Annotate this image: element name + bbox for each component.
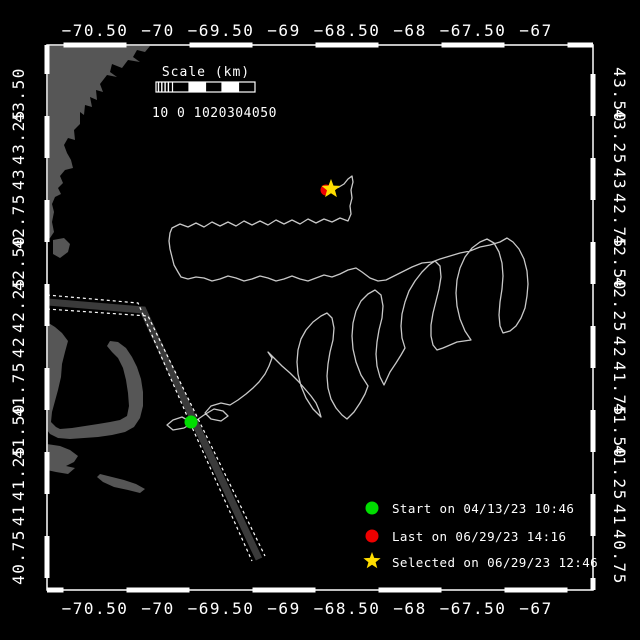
glider-track-layer[interactable]	[167, 176, 528, 430]
glider-track[interactable]	[167, 176, 528, 430]
lat-tick-label-right: 40.75	[610, 529, 629, 585]
legend-selected-label: Selected on 06/29/23 12:46	[392, 555, 598, 570]
landmass	[47, 322, 143, 439]
scale-bar-fill	[222, 82, 239, 92]
legend-last-dot-icon	[366, 530, 379, 543]
lon-tick-label-bottom: −70.50	[62, 599, 129, 618]
lon-tick-label-bottom: −69.50	[188, 599, 255, 618]
lon-tick-label-bottom: −70	[141, 599, 174, 618]
landmass	[48, 46, 150, 240]
lat-tick-label-left: 42	[9, 336, 28, 358]
lat-tick-label-left: 42.25	[9, 277, 28, 333]
map-canvas: −70.50−70.50−70−70−69.50−69.50−69−69−68.…	[0, 0, 640, 640]
lat-tick-label-right: 41.25	[610, 445, 629, 501]
lat-tick-label-right: 43.25	[610, 109, 629, 165]
lat-tick-label-left: 41.25	[9, 445, 28, 501]
lon-tick-label-top: −67.50	[440, 21, 507, 40]
legend-start-dot-icon	[366, 502, 379, 515]
lat-tick-label-right: 42	[610, 336, 629, 358]
scale-bar-title: Scale (km)	[162, 65, 250, 80]
lon-tick-label-top: −68	[393, 21, 426, 40]
scale-bar-numbers: 10 0 1020304050	[152, 106, 277, 121]
lon-tick-label-top: −69	[267, 21, 300, 40]
lon-tick-label-bottom: −67.50	[440, 599, 507, 618]
lon-tick-label-top: −69.50	[188, 21, 255, 40]
lon-tick-label-bottom: −68.50	[314, 599, 381, 618]
lon-tick-label-top: −70	[141, 21, 174, 40]
lon-tick-label-top: −67	[519, 21, 552, 40]
landmass	[97, 474, 145, 493]
scale-bar: Scale (km) 10 0 1020304050	[152, 65, 277, 121]
lat-tick-label-right: 41	[610, 504, 629, 526]
scale-bar-graphic	[156, 82, 255, 92]
lat-tick-label-right: 42.25	[610, 277, 629, 333]
lat-tick-label-right: 43	[610, 168, 629, 190]
landmass	[47, 444, 78, 474]
lon-tick-label-bottom: −68	[393, 599, 426, 618]
start-position-marker[interactable]	[185, 416, 198, 429]
map-window: −70.50−70.50−70−70−69.50−69.50−69−69−68.…	[0, 0, 640, 640]
scale-bar-fill	[189, 82, 206, 92]
lat-tick-label-left: 41	[9, 504, 28, 526]
legend-selected-star-icon	[363, 552, 380, 568]
lon-tick-label-top: −70.50	[62, 21, 129, 40]
lat-tick-label-left: 43.25	[9, 109, 28, 165]
legend-start-label: Start on 04/13/23 10:46	[392, 501, 574, 516]
lat-tick-label-left: 43	[9, 168, 28, 190]
lon-tick-label-top: −68.50	[314, 21, 381, 40]
lat-tick-label-left: 40.75	[9, 529, 28, 585]
land-layer	[47, 46, 150, 493]
track-markers-layer[interactable]	[185, 179, 341, 429]
legend-last-label: Last on 06/29/23 14:16	[392, 529, 566, 544]
lon-tick-label-bottom: −69	[267, 599, 300, 618]
legend: Start on 04/13/23 10:46 Last on 06/29/23…	[363, 501, 598, 570]
legend-selected-star	[363, 552, 380, 568]
lon-tick-label-bottom: −67	[519, 599, 552, 618]
landmass	[53, 238, 70, 258]
